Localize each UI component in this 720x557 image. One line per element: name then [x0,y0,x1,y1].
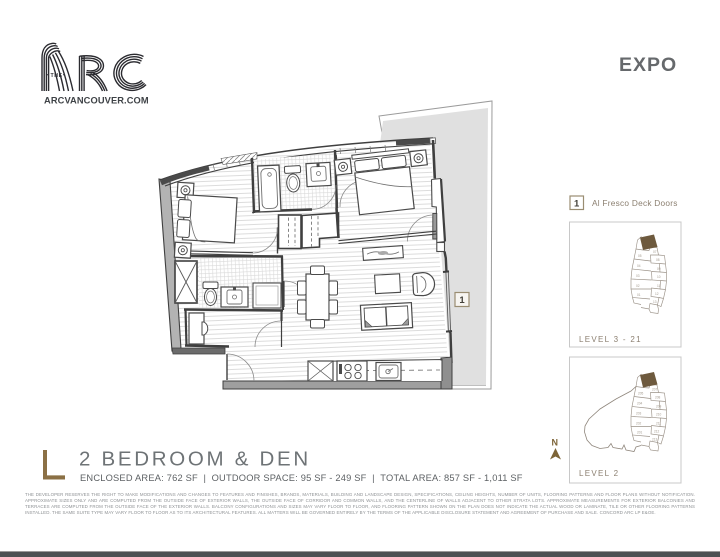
svg-text:208: 208 [655,396,661,400]
svg-text:202: 202 [636,422,642,426]
svg-text:LEVEL 2: LEVEL 2 [579,469,619,478]
svg-text:03: 03 [636,274,640,278]
svg-text:07: 07 [653,250,657,254]
svg-text:01: 01 [637,293,641,297]
svg-text:THE: THE [51,73,63,79]
svg-text:212: 212 [654,430,660,434]
svg-text:210: 210 [656,413,662,417]
svg-text:211: 211 [656,422,661,426]
svg-text:205: 205 [638,392,644,396]
svg-text:201: 201 [637,431,643,435]
svg-text:207: 207 [652,388,658,392]
svg-text:1: 1 [574,198,580,209]
svg-text:Al Fresco Deck Doors: Al Fresco Deck Doors [592,198,678,208]
svg-text:11: 11 [657,284,661,288]
svg-text:13: 13 [653,300,657,304]
svg-text:213: 213 [652,438,658,442]
svg-text:09: 09 [657,267,661,271]
svg-text:05: 05 [638,254,642,258]
svg-text:N: N [552,438,559,448]
svg-text:LEVEL 3 - 21: LEVEL 3 - 21 [579,335,642,344]
svg-text:1: 1 [459,295,465,306]
svg-text:04: 04 [637,264,641,268]
svg-text:12: 12 [655,292,659,296]
svg-text:209: 209 [656,405,662,409]
svg-text:203: 203 [636,412,642,416]
svg-text:EXPO: EXPO [619,54,677,76]
svg-text:02: 02 [636,284,640,288]
svg-text:ENCLOSED AREA: 762 SF | OUTD: ENCLOSED AREA: 762 SF | OUTDOOR SPACE: 9… [80,473,523,483]
svg-text:204: 204 [637,402,643,406]
svg-text:10: 10 [657,275,661,279]
svg-text:ARCVANCOUVER.COM: ARCVANCOUVER.COM [44,96,149,106]
svg-text:2 BEDROOM & DEN: 2 BEDROOM & DEN [79,448,311,471]
svg-text:08: 08 [656,258,660,262]
